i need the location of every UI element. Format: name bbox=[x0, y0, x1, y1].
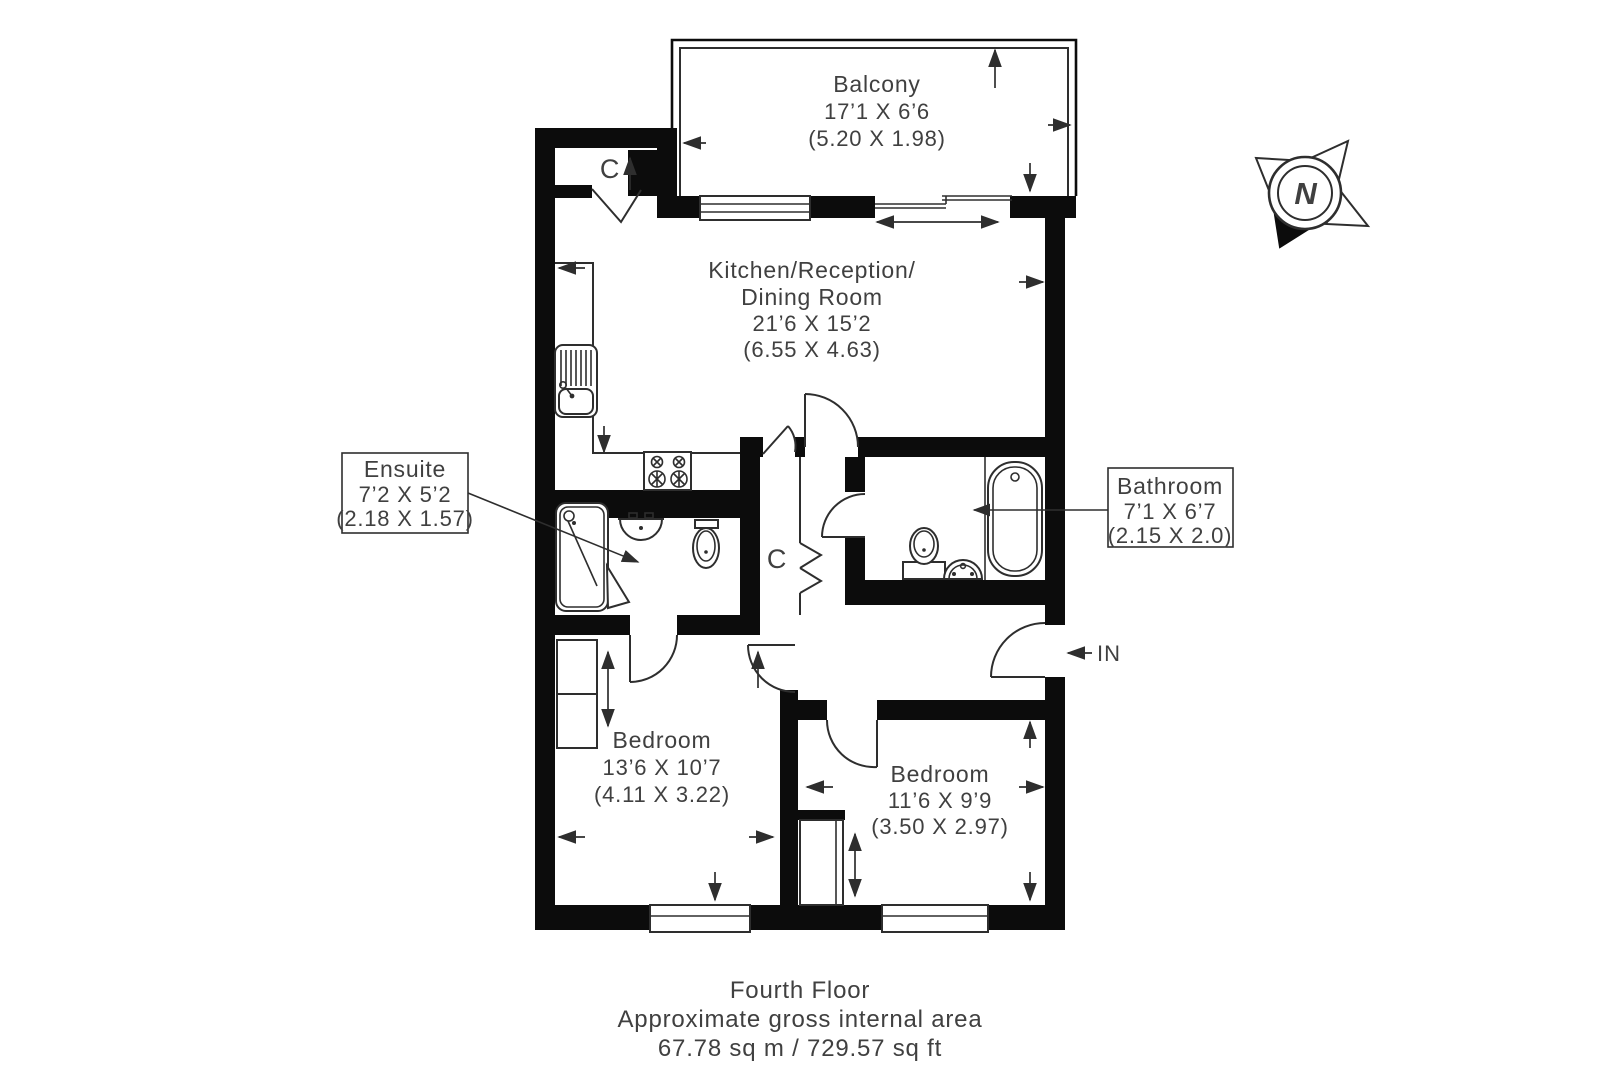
wall-corner-block bbox=[657, 128, 677, 218]
entrance-label: IN bbox=[1097, 641, 1121, 666]
bedroom2-door bbox=[827, 720, 877, 767]
kitchen-sink-icon bbox=[555, 345, 597, 417]
bedroom1-wardrobe bbox=[557, 694, 597, 748]
wall-bedroom1-top-a bbox=[555, 615, 630, 635]
room-dims-imperial: 13’6 X 10’7 bbox=[603, 755, 722, 780]
hall-closet-bifold-door bbox=[800, 457, 821, 615]
kitchen-closet-door bbox=[763, 426, 796, 454]
footer-caption: Fourth Floor Approximate gross internal … bbox=[618, 977, 983, 1062]
wall-bathroom-left-upper bbox=[845, 457, 865, 492]
floorplan-page: Balcony 17’1 X 6’6 (5.20 X 1.98) Kitchen… bbox=[0, 0, 1620, 1080]
wall-left bbox=[535, 128, 555, 930]
room-name: Bedroom bbox=[891, 761, 990, 787]
ensuite-toilet-icon bbox=[693, 520, 719, 568]
wall-kitchen-top-c bbox=[1010, 196, 1076, 218]
wall-closet-partition bbox=[555, 185, 592, 198]
bedroom1-label: Bedroom 13’6 X 10’7 (4.11 X 3.22) bbox=[594, 727, 730, 807]
bedroom1-wardrobe bbox=[557, 640, 597, 694]
wall-kitchen-top-b bbox=[810, 196, 875, 218]
wall-bathroom-top bbox=[858, 437, 1045, 457]
room-dims-imperial: 11’6 X 9’9 bbox=[888, 788, 992, 813]
room-name: Bedroom bbox=[613, 727, 712, 753]
room-name: Balcony bbox=[833, 71, 920, 97]
wall-bedroom2-top-b bbox=[877, 700, 1045, 720]
bedroom2-window bbox=[882, 905, 988, 932]
kitchen-window bbox=[700, 196, 810, 220]
wall-bottom-c bbox=[988, 905, 1065, 930]
shower-pivot-door bbox=[607, 566, 629, 608]
room-name: Dining Room bbox=[741, 284, 883, 310]
stove-icon bbox=[644, 452, 691, 490]
ensuite-fixtures bbox=[556, 503, 719, 611]
ensuite-bedroom1-door bbox=[630, 635, 677, 682]
floor-name: Fourth Floor bbox=[730, 977, 870, 1004]
compass-icon: N bbox=[1256, 141, 1368, 247]
wall-top-closet bbox=[535, 128, 677, 148]
corridor-bedroom1-door bbox=[748, 645, 795, 692]
wall-b-vertical bbox=[740, 457, 760, 620]
closet-label: C bbox=[767, 544, 787, 574]
room-dims-metric: (3.50 X 2.97) bbox=[871, 814, 1009, 839]
room-dims-metric: (5.20 X 1.98) bbox=[808, 126, 946, 151]
wall-bedroom2-top-a bbox=[780, 700, 827, 720]
wall-wardrobe-nook bbox=[798, 810, 845, 820]
bathroom-fixtures bbox=[903, 457, 1042, 580]
area-value: 67.78 sq m / 729.57 sq ft bbox=[658, 1035, 942, 1062]
room-dims-metric: (6.55 X 4.63) bbox=[743, 337, 881, 362]
compass-north-label: N bbox=[1294, 176, 1317, 211]
bathtub-icon bbox=[988, 462, 1042, 576]
wall-right-upper bbox=[1045, 218, 1065, 625]
kitchen-hall-door bbox=[805, 394, 858, 447]
wall-bathroom-bottom bbox=[845, 580, 1065, 605]
entrance-door bbox=[991, 623, 1045, 677]
closet-label: C bbox=[600, 154, 620, 184]
balcony-label: Balcony 17’1 X 6’6 (5.20 X 1.98) bbox=[808, 71, 946, 151]
room-dims-imperial: 17’1 X 6’6 bbox=[824, 99, 930, 124]
wall-bedroom1-top-b bbox=[677, 615, 760, 635]
room-dims-imperial: 7’1 X 6’7 bbox=[1124, 499, 1217, 524]
room-name: Kitchen/Reception/ bbox=[708, 257, 915, 283]
wall-bottom-b bbox=[750, 905, 882, 930]
entrance-marker: IN bbox=[1068, 641, 1121, 666]
wall-balcony-attach bbox=[628, 150, 658, 196]
room-dims-imperial: 7’2 X 5’2 bbox=[359, 482, 452, 507]
wall-hall-a bbox=[740, 437, 763, 457]
room-dims-metric: (2.15 X 2.0) bbox=[1108, 523, 1233, 548]
bedroom2-wardrobe bbox=[800, 820, 843, 905]
bedroom1-window bbox=[650, 905, 750, 932]
sliding-balcony-door bbox=[875, 196, 1012, 208]
kitchen-label: Kitchen/Reception/ Dining Room 21’6 X 15… bbox=[708, 257, 915, 362]
bathroom-toilet-icon bbox=[903, 528, 945, 579]
kitchen-fixtures bbox=[555, 263, 740, 490]
floorplan-drawing: Balcony 17’1 X 6’6 (5.20 X 1.98) Kitchen… bbox=[0, 0, 1620, 1080]
room-dims-metric: (2.18 X 1.57) bbox=[336, 506, 474, 531]
bathroom-door bbox=[822, 494, 865, 537]
wall-kitchen-top-a bbox=[677, 196, 700, 218]
wall-bottom-a bbox=[535, 905, 650, 930]
room-dims-metric: (4.11 X 3.22) bbox=[594, 782, 730, 807]
room-dims-imperial: 21’6 X 15’2 bbox=[753, 311, 872, 336]
room-name: Bathroom bbox=[1117, 473, 1223, 499]
wall-bedroom-divider bbox=[780, 690, 798, 905]
bedroom2-label: Bedroom 11’6 X 9’9 (3.50 X 2.97) bbox=[871, 761, 1009, 839]
room-name: Ensuite bbox=[364, 456, 446, 482]
bathroom-sink-icon bbox=[944, 560, 982, 579]
area-label: Approximate gross internal area bbox=[618, 1006, 983, 1033]
wall-right-lower bbox=[1045, 677, 1065, 930]
